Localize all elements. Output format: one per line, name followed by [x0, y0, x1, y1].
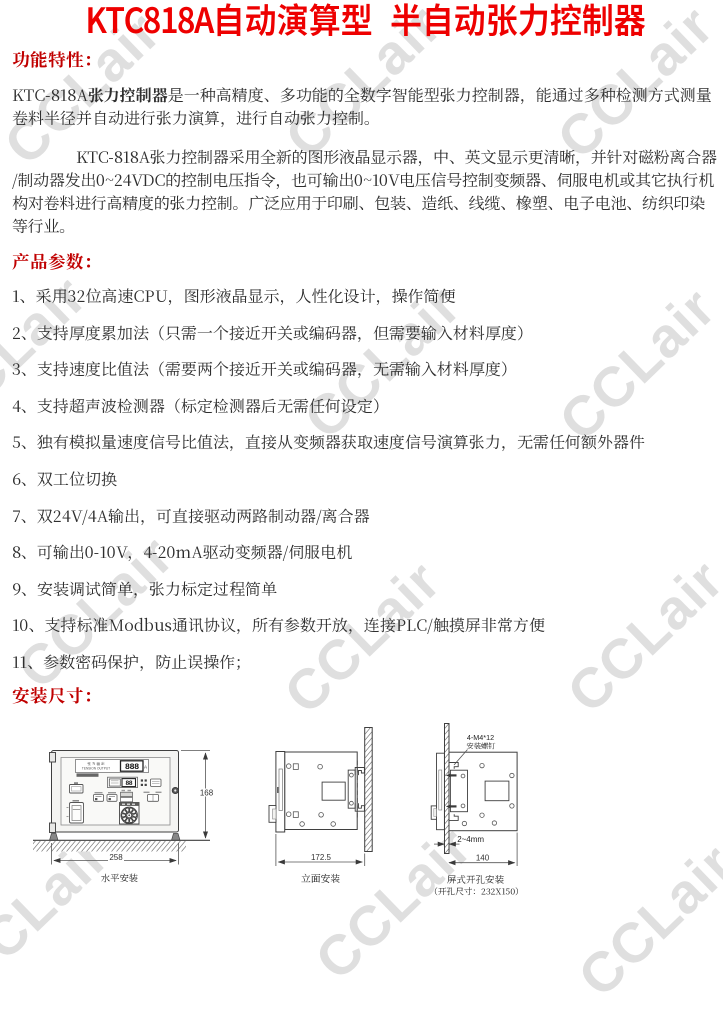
- svg-text:屏式开孔安装: 屏式开孔安装: [446, 872, 505, 886]
- svg-text:888: 888: [125, 762, 139, 772]
- svg-text:88: 88: [125, 780, 132, 787]
- svg-text:A: A: [144, 765, 147, 770]
- svg-text:安装螺钉: 安装螺钉: [467, 742, 497, 752]
- svg-text:140: 140: [476, 854, 490, 863]
- svg-text:立面安装: 立面安装: [301, 871, 340, 885]
- svg-text:2~4mm: 2~4mm: [457, 835, 484, 844]
- svg-text:172.5: 172.5: [311, 853, 332, 862]
- svg-text:水平安装: 水平安装: [101, 870, 139, 884]
- svg-text:258: 258: [109, 853, 123, 862]
- svg-text:TENSION OUTPUT: TENSION OUTPUT: [82, 767, 110, 771]
- svg-text:168: 168: [200, 788, 214, 797]
- svg-text:（开孔尺寸：232X150）: （开孔尺寸：232X150）: [429, 885, 523, 897]
